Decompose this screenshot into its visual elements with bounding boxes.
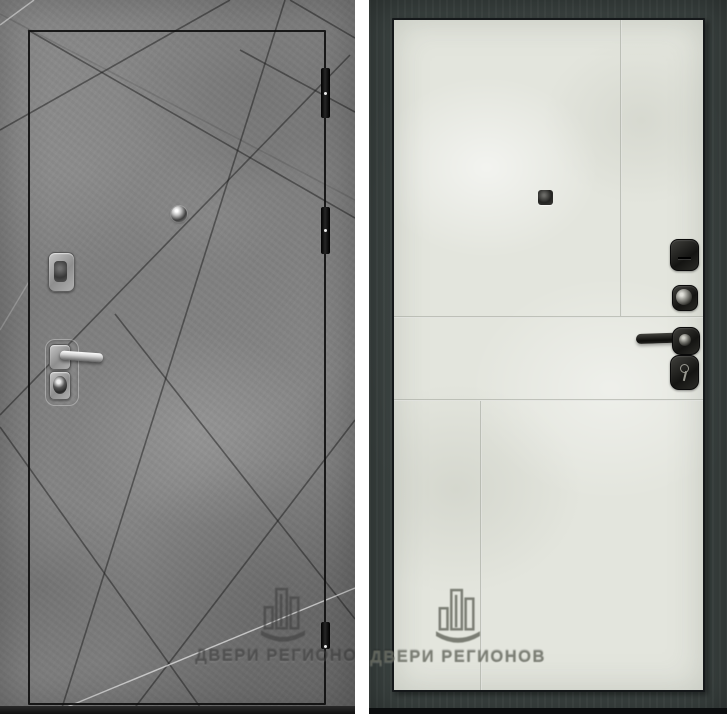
lock-cylinder-housing xyxy=(672,285,698,311)
panel-groove-horizontal-2 xyxy=(394,399,703,401)
panel-groove-vertical-lower xyxy=(480,401,482,690)
key-escutcheon xyxy=(670,355,699,390)
door-exterior-photo: ДВЕРИ РЕГИОНОВ xyxy=(0,0,355,714)
interior-handle-rosette xyxy=(672,327,700,355)
door-product-photo: ДВЕРИ РЕГИОНОВ xyxy=(0,0,727,714)
watermark-logo-icon xyxy=(436,585,480,643)
frame-bottom-shadow xyxy=(369,708,727,714)
watermark: ДВЕРИ РЕГИОНОВ xyxy=(378,585,538,667)
thumb-turn-slot xyxy=(678,257,691,259)
handle-spindle xyxy=(679,334,691,346)
peephole-cover xyxy=(538,190,553,205)
watermark-text: ДВЕРИ РЕГИОНОВ xyxy=(370,648,546,667)
photo-vignette xyxy=(0,0,355,714)
panel-groove-horizontal-1 xyxy=(394,316,703,318)
panel-groove-vertical-upper xyxy=(620,20,622,316)
interior-door-leaf: ДВЕРИ РЕГИОНОВ xyxy=(392,18,705,692)
night-latch-cover xyxy=(670,239,699,271)
door-bottom-shadow xyxy=(0,706,355,714)
door-interior-photo: ДВЕРИ РЕГИОНОВ xyxy=(369,0,727,714)
cylinder-keyhole-face xyxy=(676,289,692,305)
